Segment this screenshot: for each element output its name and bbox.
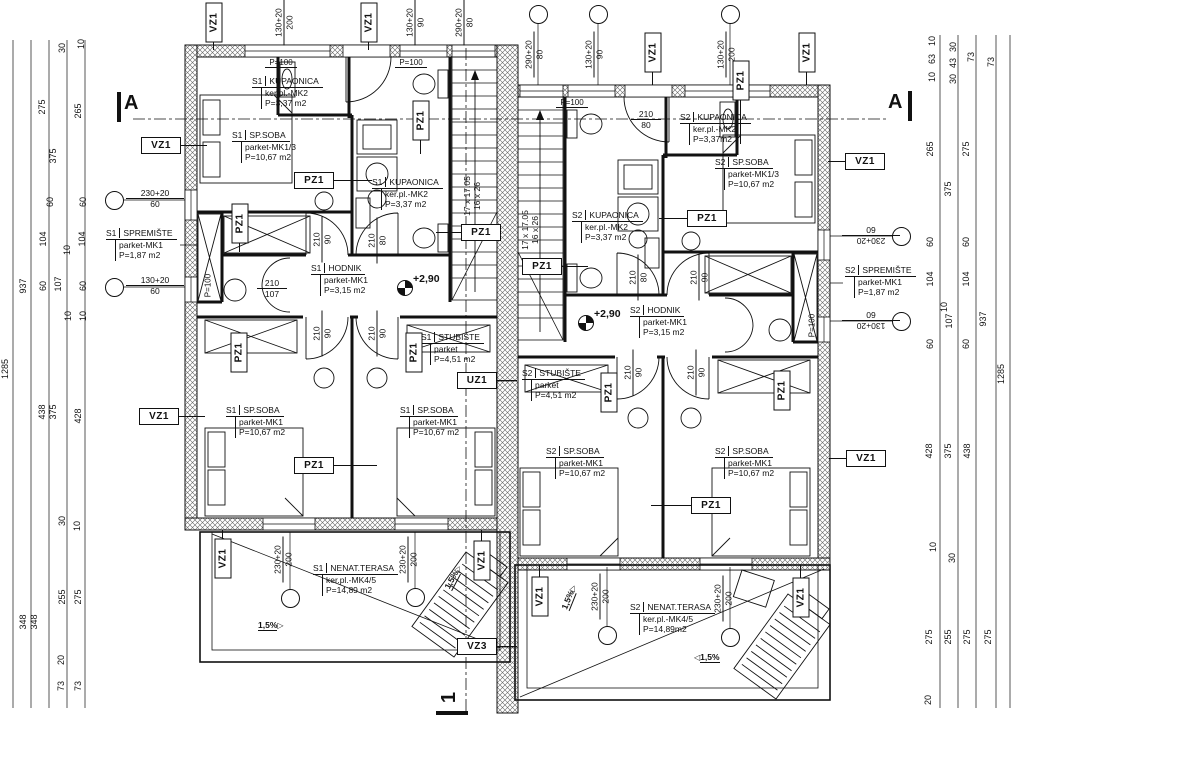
dimension-label: 375 xyxy=(943,436,953,466)
frame-tag-vz1: VZ1 xyxy=(793,578,810,618)
frame-tag-vz1: VZ1 xyxy=(845,153,885,170)
tag-leader xyxy=(495,646,517,647)
dimension-label: 275 xyxy=(962,622,972,652)
dimension-label: 255 xyxy=(57,582,67,612)
section-marker: 1 xyxy=(438,692,461,703)
door-size-label: 21090 xyxy=(689,255,710,301)
dimension-label: 73 xyxy=(73,671,83,701)
frame-tag-vz3: VZ3 xyxy=(457,638,497,655)
dimension-label: 937 xyxy=(978,304,988,334)
section-marker-bar xyxy=(436,711,468,715)
tag-leader xyxy=(659,218,687,219)
frame-tag-vz1: VZ1 xyxy=(141,137,181,154)
opening-size-label: 130+2060 xyxy=(842,310,900,331)
dimension-label: 375 xyxy=(943,174,953,204)
frame-tag-pz1: PZ1 xyxy=(461,224,501,241)
section-marker: A xyxy=(124,92,138,115)
stair-note: 17 x 17.0516 x 26 xyxy=(520,203,540,257)
dimension-label: 265 xyxy=(925,134,935,164)
leader-bubble xyxy=(105,191,124,210)
parapet-label: P=100 xyxy=(395,58,427,68)
tag-leader xyxy=(740,99,741,144)
opening-size-label: 130+2060 xyxy=(126,275,184,296)
dimension-label: 104 xyxy=(77,224,87,254)
room-label: S1NENAT.TERASAker.pl.-MK4/5P=14,89 m2 xyxy=(313,563,398,596)
dimension-label: 428 xyxy=(924,436,934,466)
dimension-label: 30 xyxy=(947,543,957,573)
dimension-label: 255 xyxy=(943,622,953,652)
dimension-label: 30 xyxy=(57,33,67,63)
opening-size-label: 130+2090 xyxy=(405,0,426,46)
door-size-label: 21090 xyxy=(312,311,333,357)
room-label: S1HODNIKparket-MK1P=3,15 m2 xyxy=(311,263,368,296)
frame-tag-pz1: PZ1 xyxy=(413,101,430,141)
stair-note: 17 x 17.0516 x 26 xyxy=(462,169,482,223)
level-symbol xyxy=(397,280,413,296)
dimension-label: 73 xyxy=(966,42,976,72)
tag-leader xyxy=(179,145,207,146)
frame-tag-vz1: VZ1 xyxy=(799,33,816,73)
frame-tag-vz1: VZ1 xyxy=(361,3,378,43)
tag-leader xyxy=(332,465,377,466)
dimension-label: 375 xyxy=(48,397,58,427)
dimension-label: 10 xyxy=(62,235,72,265)
tag-leader xyxy=(560,266,588,267)
leader-bubble xyxy=(598,626,617,645)
dimension-label: 60 xyxy=(961,329,971,359)
dimension-label: 60 xyxy=(38,271,48,301)
tag-leader xyxy=(495,380,517,381)
room-label: S2SPREMIŠTEparket-MK1P=1,87 m2 xyxy=(845,265,916,298)
frame-tag-vz1: VZ1 xyxy=(645,33,662,73)
section-marker: A xyxy=(888,91,902,114)
frame-tag-pz1: PZ1 xyxy=(687,210,727,227)
tag-leader xyxy=(177,416,205,417)
opening-size-label: 230+2060 xyxy=(126,188,184,209)
opening-size-label: 230+20200 xyxy=(713,576,734,622)
room-label: S2NENAT.TERASAker.pl.-MK4/5P=14,89m2 xyxy=(630,602,715,635)
leader-bubble xyxy=(281,589,300,608)
level-label: +2,90 xyxy=(413,273,440,285)
frame-tag-pz1: PZ1 xyxy=(774,371,791,411)
room-label: S2HODNIKparket-MK1P=3,15 m2 xyxy=(630,305,687,338)
dimension-label: 10 xyxy=(78,301,88,331)
frame-tag-vz1: VZ1 xyxy=(215,539,232,579)
terrace-table xyxy=(733,570,774,607)
tag-leader xyxy=(420,139,421,154)
opening-size-label: 230+2060 xyxy=(842,225,900,246)
room-label: S1KUPAONICAker.pl.-MK2P=3,37 m2 xyxy=(252,76,323,109)
opening-size-label: 230+20200 xyxy=(590,574,611,620)
dimension-label: 375 xyxy=(48,141,58,171)
dimension-label: 348 xyxy=(29,607,39,637)
dimension-label: 10 xyxy=(76,29,86,59)
opening-size-label: 130+20200 xyxy=(274,0,295,46)
room-label: S2SP.SOBAparket-MK1P=10,67 m2 xyxy=(715,446,774,479)
dimension-label: 438 xyxy=(37,397,47,427)
leader-bubble xyxy=(105,278,124,297)
parapet-label: P=100 xyxy=(265,58,297,68)
parapet-label: P=100 xyxy=(808,310,817,342)
frame-tag-vz1: VZ1 xyxy=(532,577,549,617)
opening-size-label: 290+2080 xyxy=(454,0,475,46)
dimension-label: 60 xyxy=(925,329,935,359)
tag-leader xyxy=(481,530,482,541)
room-label: S1SP.SOBAparket-MK1/3P=10,67 m2 xyxy=(232,130,296,163)
dimension-label: 60 xyxy=(45,187,55,217)
room-label: S1KUPAONICAker.pl.-MK2P=3,37 m2 xyxy=(372,177,443,210)
dimension-label: 265 xyxy=(73,96,83,126)
door-size-label: 21090 xyxy=(623,350,644,396)
frame-tag-pz1: PZ1 xyxy=(294,172,334,189)
leader-bubble xyxy=(406,588,425,607)
frame-tag-pz1: PZ1 xyxy=(522,258,562,275)
dimension-label: 10 xyxy=(928,532,938,562)
slope-label: 1,5%▷ xyxy=(258,620,284,630)
dimension-label: 1285 xyxy=(0,354,10,384)
tag-leader xyxy=(652,71,653,85)
dimension-label: 30 xyxy=(57,506,67,536)
room-label: S2SP.SOBAparket-MK1P=10,67 m2 xyxy=(546,446,605,479)
parapet-label: P=100 xyxy=(204,270,213,302)
dimension-label: 60 xyxy=(78,187,88,217)
level-label: +2,90 xyxy=(594,308,621,320)
frame-tag-vz1: VZ1 xyxy=(474,541,491,581)
leader-bubble xyxy=(721,5,740,24)
opening-size-label: 230+20200 xyxy=(273,537,294,583)
dimension-label: 30 xyxy=(948,64,958,94)
dimension-label: 275 xyxy=(37,92,47,122)
room-label: S1SPREMIŠTEparket-MK1P=1,87 m2 xyxy=(106,228,177,261)
dimension-label: 104 xyxy=(925,264,935,294)
dimension-label: 275 xyxy=(924,622,934,652)
opening-size-label: 290+2080 xyxy=(524,32,545,78)
leader-bubble xyxy=(529,5,548,24)
dimension-label: 428 xyxy=(73,401,83,431)
frame-tag-pz1: PZ1 xyxy=(294,457,334,474)
tag-leader xyxy=(539,565,540,577)
frame-tag-pz1: PZ1 xyxy=(406,333,423,373)
door-size-label: 21080 xyxy=(631,109,661,130)
opening-size-label: 130+2090 xyxy=(584,32,605,78)
room-label: S2SP.SOBAparket-MK1/3P=10,67 m2 xyxy=(715,157,779,190)
dimension-label: 104 xyxy=(38,224,48,254)
room-label: S1STUBIŠTEparketP=4,51 m2 xyxy=(421,332,484,365)
frame-tag-pz1: PZ1 xyxy=(231,333,248,373)
door-size-label: 21080 xyxy=(367,218,388,264)
door-size-label: 21090 xyxy=(367,311,388,357)
frame-tag-pz1: PZ1 xyxy=(691,497,731,514)
door-size-label: 21090 xyxy=(686,350,707,396)
door-size-label: 210107 xyxy=(257,278,287,299)
slope-label: ◁1,5% xyxy=(694,652,720,662)
room-label: S2STUBIŠTEparketP=4,51 m2 xyxy=(522,368,585,401)
tag-leader xyxy=(436,232,461,233)
dimension-label: 438 xyxy=(962,436,972,466)
room-label: S1SP.SOBAparket-MK1P=10,67 m2 xyxy=(226,405,285,438)
dimension-label: 937 xyxy=(18,271,28,301)
door-size-label: 21080 xyxy=(628,255,649,301)
dimension-label: 60 xyxy=(961,227,971,257)
frame-tag-pz1: PZ1 xyxy=(733,61,750,101)
tag-leader xyxy=(332,180,372,181)
tag-leader xyxy=(806,71,807,85)
dimension-label: 10 xyxy=(63,301,73,331)
door-size-label: 21090 xyxy=(312,217,333,263)
dimension-label: 107 xyxy=(944,306,954,336)
dimension-label: 73 xyxy=(986,47,996,77)
frame-tag-pz1: PZ1 xyxy=(232,204,249,244)
dimension-label: 275 xyxy=(961,134,971,164)
level-symbol xyxy=(578,315,594,331)
dimension-label: 275 xyxy=(73,582,83,612)
frame-tag-vz1: VZ1 xyxy=(846,450,886,467)
leader-bubble xyxy=(589,5,608,24)
dimension-label: 73 xyxy=(56,671,66,701)
dimension-label: 275 xyxy=(983,622,993,652)
tag-leader xyxy=(828,161,845,162)
room-label: S2KUPAONICAker.pl.-MK2P=3,37 m2 xyxy=(572,210,643,243)
floor-plan: VZ1VZ1VZ1VZ1VZ1VZ1VZ1VZ1VZ1VZ1VZ1VZ1PZ1P… xyxy=(0,0,1200,763)
dimension-label: 10 xyxy=(72,511,82,541)
dimension-label: 104 xyxy=(961,264,971,294)
tag-leader xyxy=(829,458,846,459)
frame-tag-uz1: UZ1 xyxy=(457,372,497,389)
room-label: S1SP.SOBAparket-MK1P=10,67 m2 xyxy=(400,405,459,438)
frame-tag-pz1: PZ1 xyxy=(601,373,618,413)
section-marker-bar xyxy=(908,91,912,121)
leader-bubble xyxy=(721,628,740,647)
opening-size-label: 230+20200 xyxy=(398,537,419,583)
dimension-label: 60 xyxy=(925,227,935,257)
tag-leader xyxy=(800,565,801,578)
parapet-label: P=100 xyxy=(556,98,588,108)
dimension-label: 60 xyxy=(78,271,88,301)
dimension-label: 10 xyxy=(927,62,937,92)
dimension-label: 348 xyxy=(18,607,28,637)
section-marker-bar xyxy=(117,92,121,122)
dimension-label: 107 xyxy=(53,269,63,299)
dimension-label: 20 xyxy=(923,685,933,715)
dimension-label: 1285 xyxy=(996,359,1006,389)
frame-tag-vz1: VZ1 xyxy=(206,3,223,43)
shared-linework xyxy=(13,22,1010,713)
tag-leader xyxy=(239,242,240,252)
frame-tag-vz1: VZ1 xyxy=(139,408,179,425)
tag-leader xyxy=(651,505,691,506)
